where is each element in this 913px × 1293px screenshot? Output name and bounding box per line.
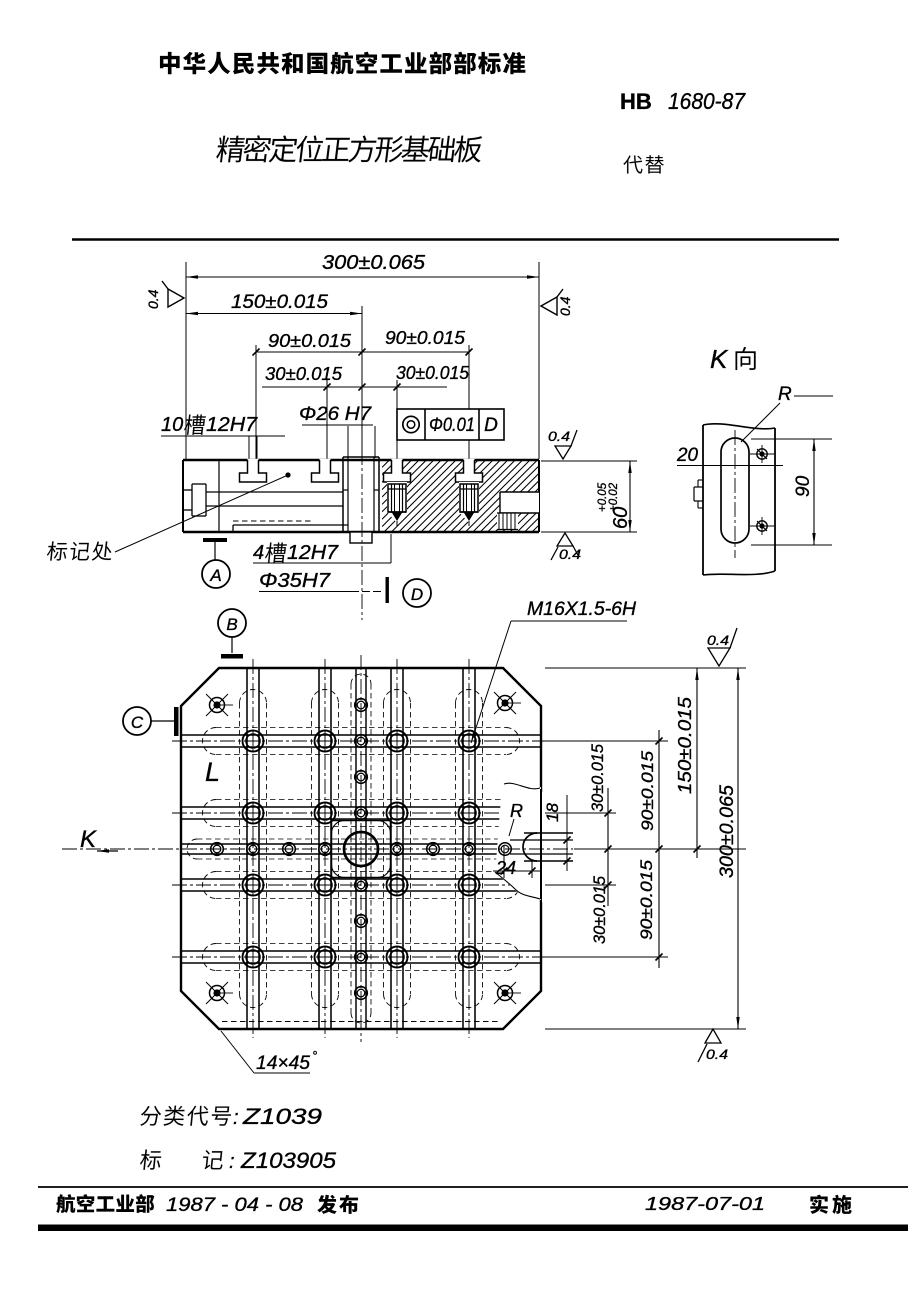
svg-text:Z1039: Z1039 (242, 1104, 322, 1129)
svg-text:Z103905: Z103905 (240, 1148, 337, 1173)
svg-text:0.4: 0.4 (559, 546, 581, 562)
svg-text:30±0.015: 30±0.015 (590, 875, 609, 944)
svg-text:A: A (209, 566, 221, 585)
svg-text:1987 - 04 - 08: 1987 - 04 - 08 (166, 1195, 303, 1216)
svg-text::: : (229, 1151, 235, 1173)
svg-text:0.4: 0.4 (557, 296, 573, 316)
svg-text:30±0.015: 30±0.015 (265, 364, 343, 384)
svg-text:30±0.015: 30±0.015 (396, 363, 470, 383)
svg-text:4: 4 (253, 542, 264, 564)
svg-text:K: K (80, 826, 97, 853)
svg-text:30±0.015: 30±0.015 (588, 743, 607, 812)
svg-text:C: C (131, 713, 144, 732)
svg-text:+0.02: +0.02 (608, 482, 620, 512)
svg-text:R: R (510, 801, 523, 821)
svg-text:18: 18 (543, 803, 562, 822)
svg-text:20: 20 (676, 445, 698, 466)
svg-text:°: ° (312, 1048, 317, 1063)
svg-text:0.4: 0.4 (706, 1046, 728, 1062)
svg-text:0.4: 0.4 (145, 289, 161, 309)
svg-text:B: B (226, 615, 237, 634)
svg-text:150±0.015: 150±0.015 (231, 292, 328, 313)
svg-text:90±0.015: 90±0.015 (268, 331, 352, 351)
svg-text:D: D (411, 585, 423, 604)
svg-text:300±0.065: 300±0.065 (717, 785, 738, 878)
svg-text:M16X1.5-6H: M16X1.5-6H (527, 599, 636, 620)
svg-text:90±0.015: 90±0.015 (385, 328, 466, 348)
svg-text:L: L (205, 757, 220, 787)
svg-text:Φ26 H7: Φ26 H7 (299, 404, 373, 425)
svg-text:90: 90 (793, 475, 814, 497)
svg-text:K: K (710, 344, 729, 374)
svg-text:300±0.065: 300±0.065 (322, 252, 426, 274)
svg-text:12H7: 12H7 (287, 542, 339, 564)
svg-text:150±0.015: 150±0.015 (675, 696, 695, 794)
svg-text:Φ0.01: Φ0.01 (429, 415, 475, 436)
svg-text:0.4: 0.4 (548, 428, 570, 444)
svg-text:1987-07-01: 1987-07-01 (645, 1194, 765, 1214)
svg-text::: : (233, 1107, 239, 1129)
svg-text:90±0.015: 90±0.015 (638, 750, 657, 831)
svg-text:10: 10 (161, 414, 183, 436)
svg-text:D: D (484, 415, 498, 436)
svg-text:90±0.015: 90±0.015 (637, 859, 656, 940)
svg-text:12H7: 12H7 (206, 414, 258, 436)
svg-text:Φ35H7: Φ35H7 (259, 570, 331, 592)
svg-text:14×45: 14×45 (256, 1053, 310, 1074)
svg-text:HB: HB (620, 89, 652, 114)
svg-text:1680-87: 1680-87 (668, 88, 746, 114)
svg-text:24: 24 (495, 858, 516, 878)
svg-text:R: R (778, 384, 792, 405)
svg-text:0.4: 0.4 (707, 632, 729, 648)
